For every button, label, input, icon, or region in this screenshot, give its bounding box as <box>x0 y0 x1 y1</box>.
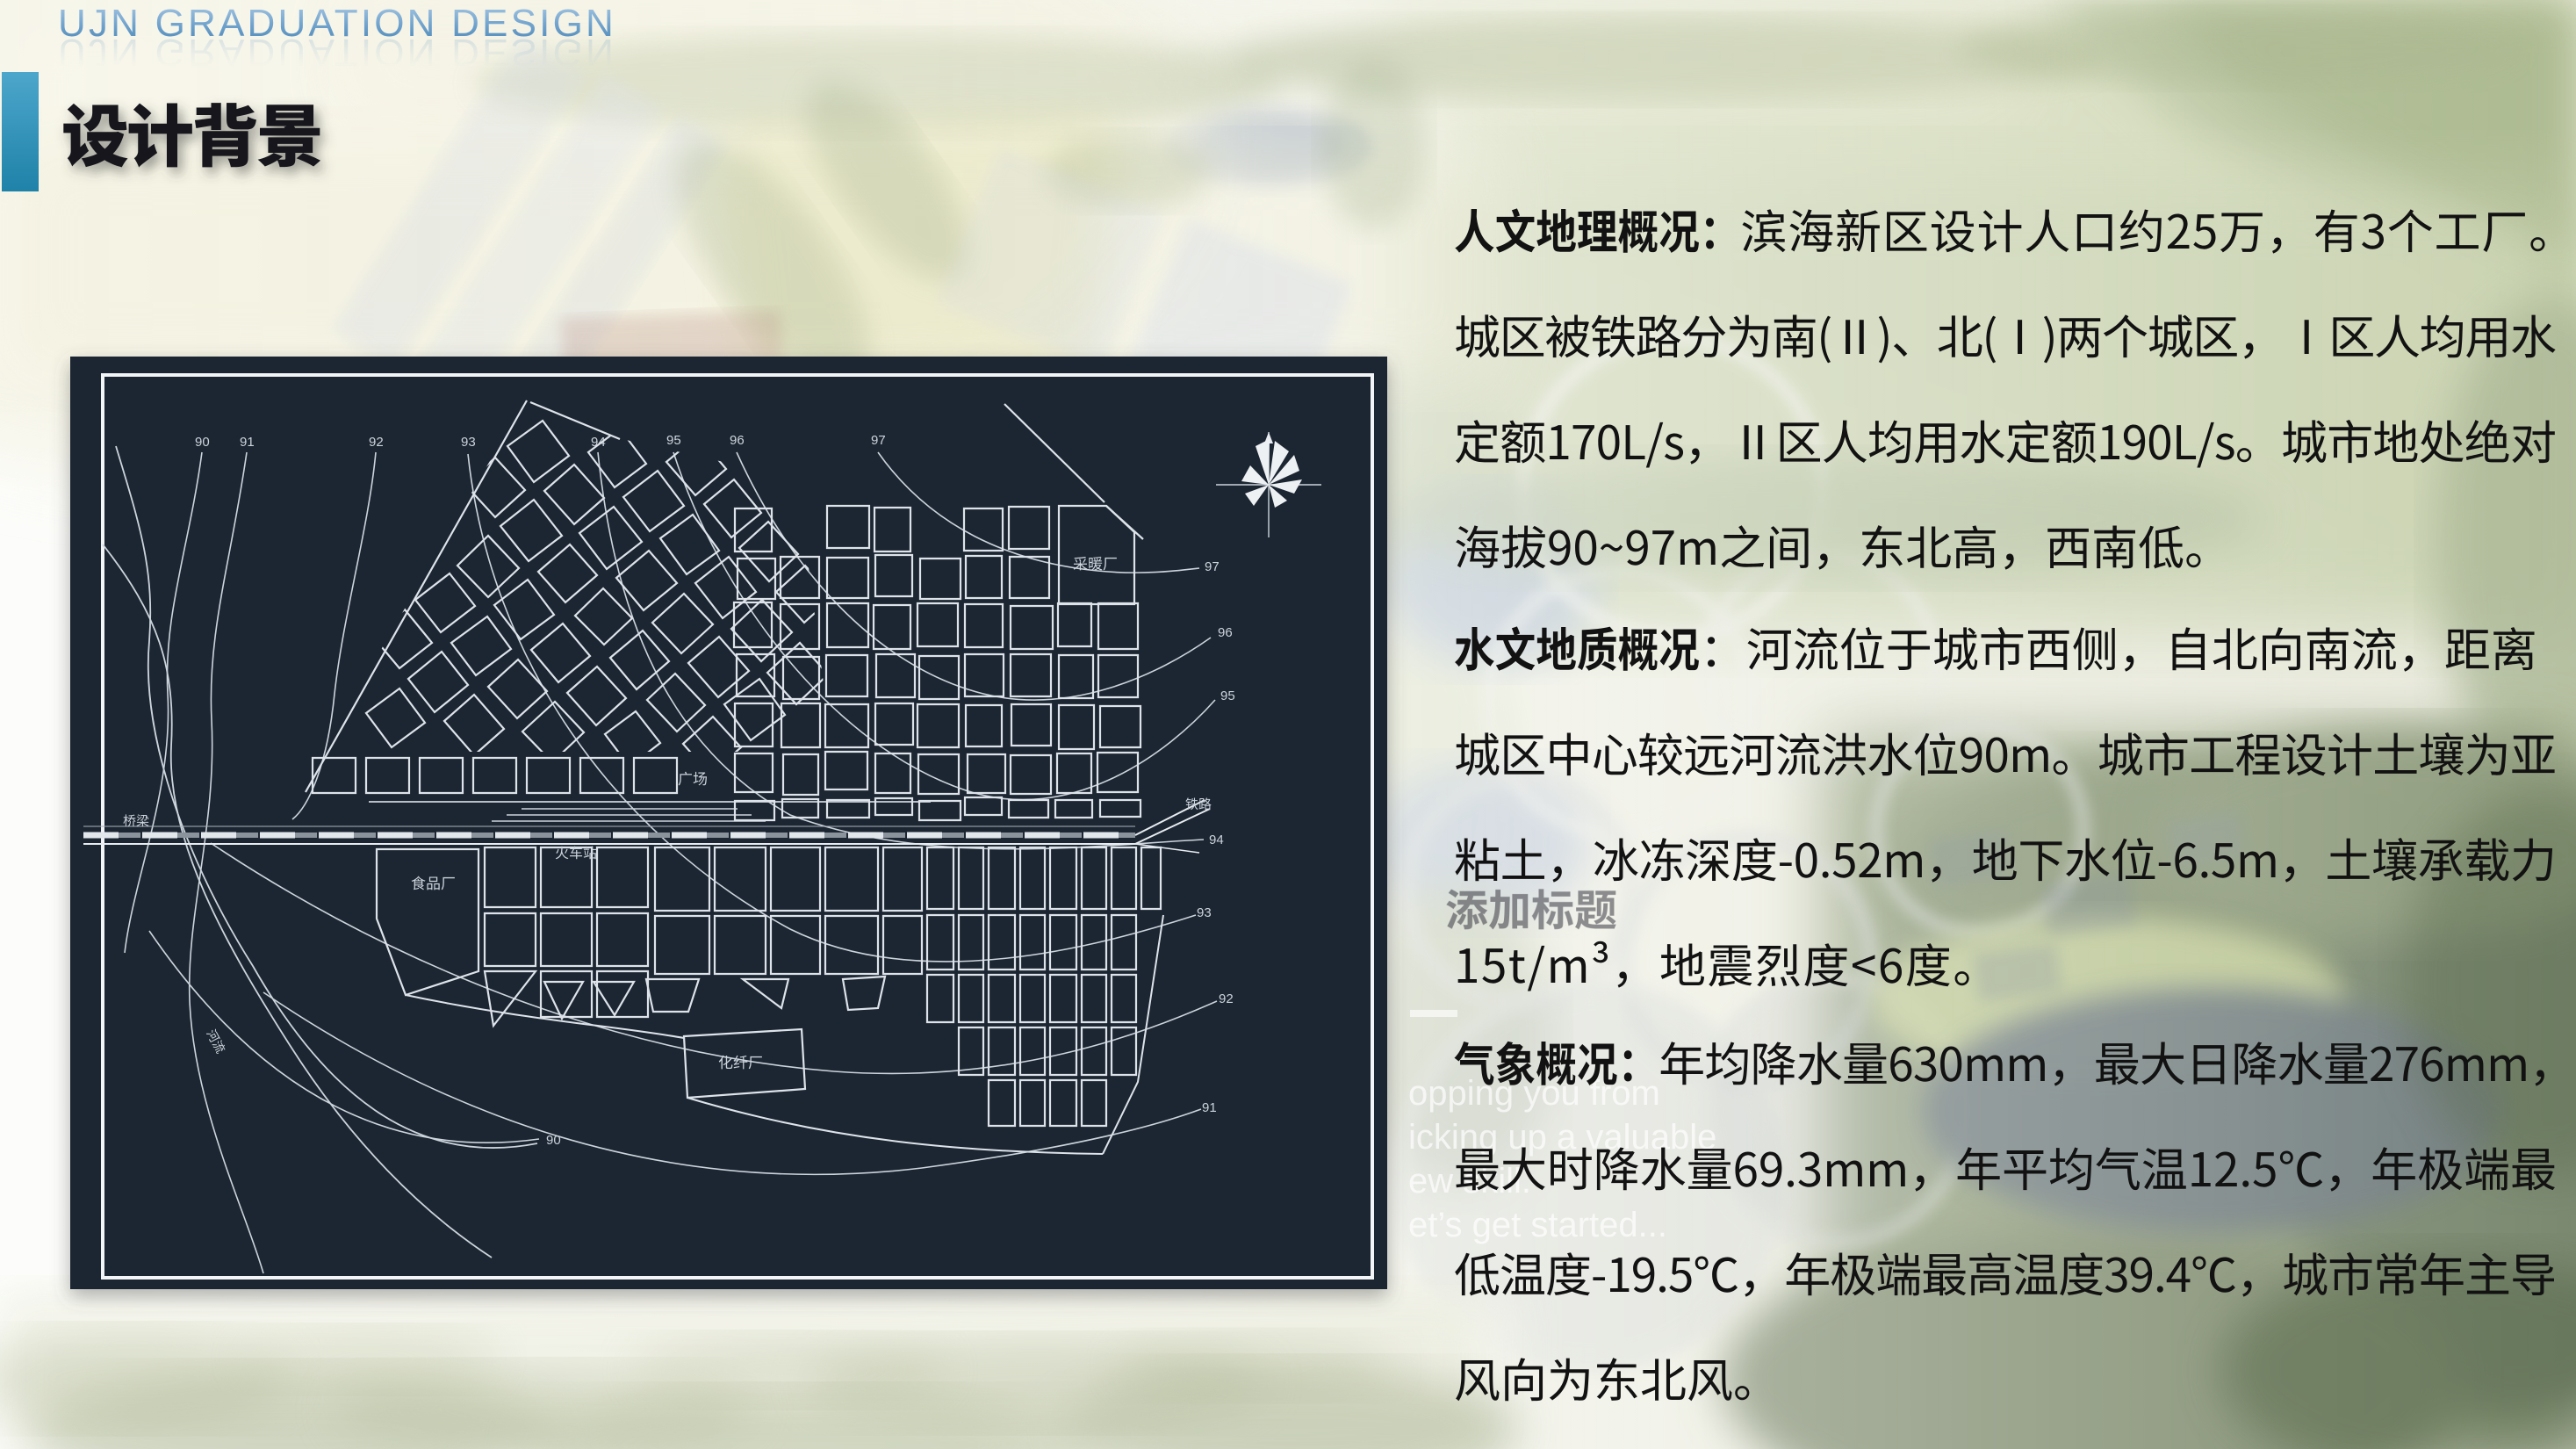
svg-text:97: 97 <box>1205 559 1220 574</box>
svg-text:et’s get started...: et’s get started... <box>1408 1206 1667 1244</box>
svg-text:94: 94 <box>591 435 606 450</box>
svg-text:93: 93 <box>461 435 476 450</box>
svg-text:96: 96 <box>730 433 745 448</box>
svg-text:90: 90 <box>195 435 210 450</box>
svg-text:97: 97 <box>871 433 886 448</box>
svg-text:91: 91 <box>240 435 255 450</box>
svg-text:UJN GRADUATION DESIGN: UJN GRADUATION DESIGN <box>58 31 616 74</box>
svg-text:91: 91 <box>1202 1100 1217 1115</box>
svg-text:92: 92 <box>369 435 384 450</box>
svg-text:96: 96 <box>1218 625 1233 640</box>
svg-text:95: 95 <box>1220 688 1235 703</box>
svg-text:icking up a valuable: icking up a valuable <box>1408 1118 1716 1157</box>
svg-text:94: 94 <box>1209 833 1224 847</box>
svg-text:95: 95 <box>666 433 681 448</box>
svg-text:opping you from: opping you from <box>1408 1074 1660 1113</box>
svg-text:93: 93 <box>1197 905 1212 920</box>
svg-text:92: 92 <box>1219 991 1234 1006</box>
